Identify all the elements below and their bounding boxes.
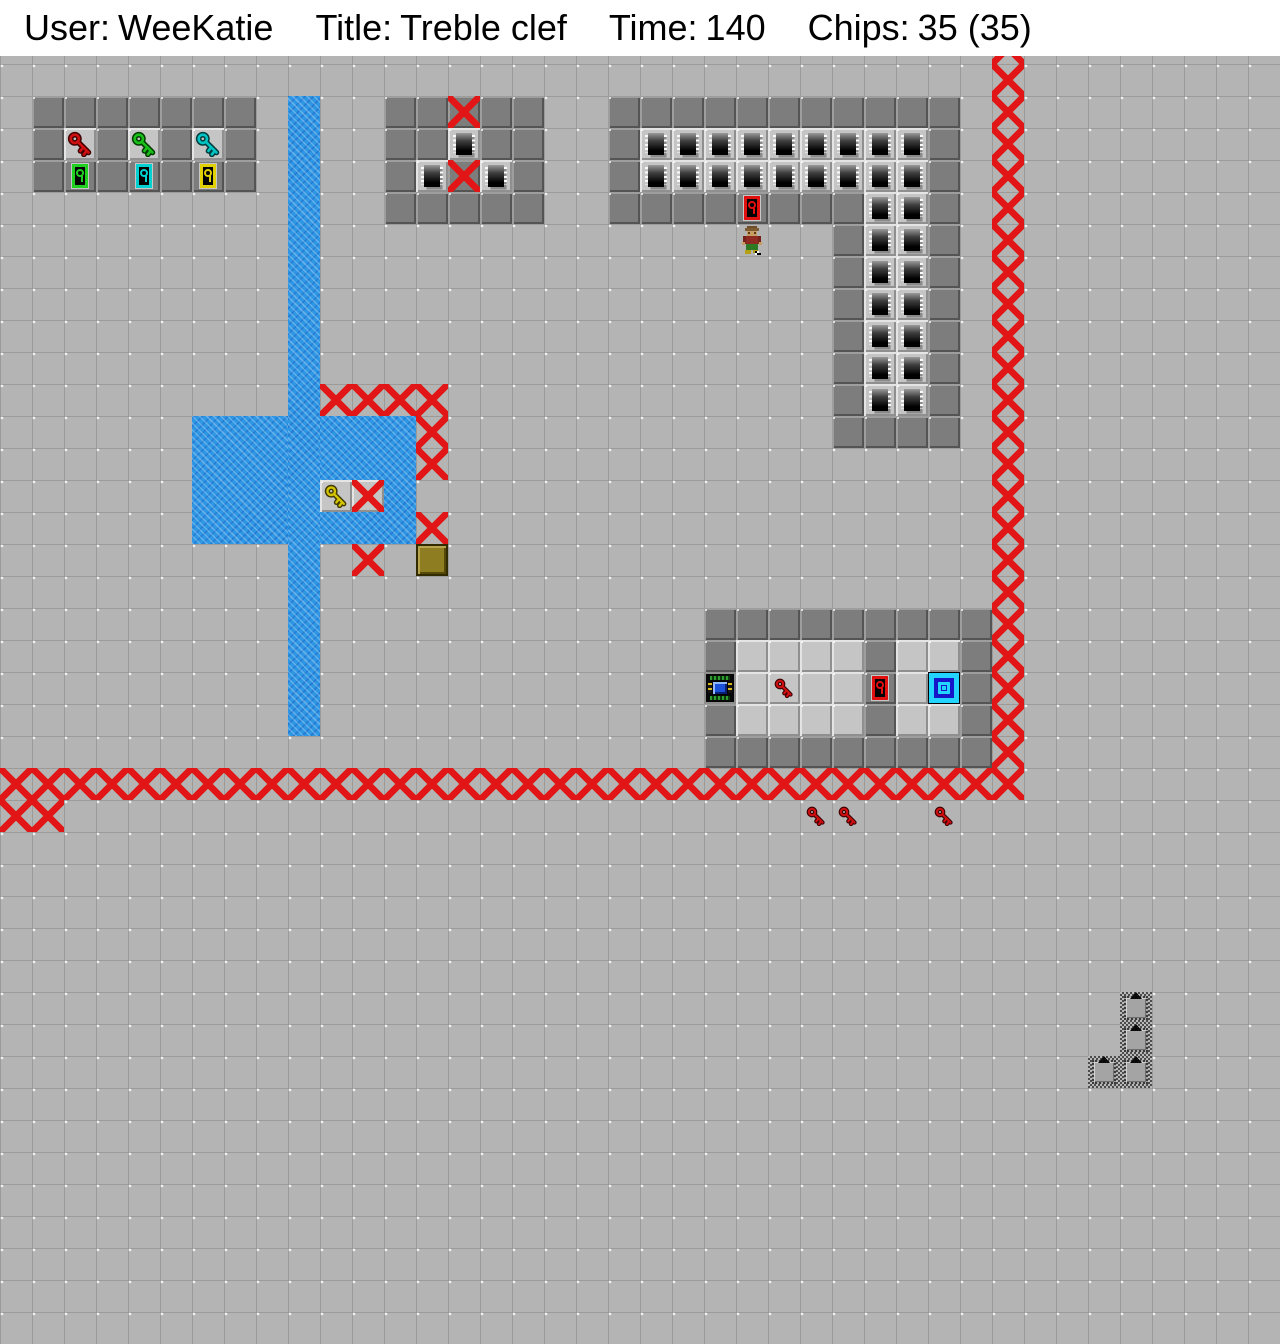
wall-tile — [832, 608, 864, 640]
cyan-door-icon — [136, 164, 152, 188]
wall-tile — [832, 736, 864, 768]
hidden-wall-arrow-icon — [1098, 1056, 1110, 1063]
red-key — [832, 800, 864, 832]
x-marker — [864, 768, 896, 800]
chip-tile — [896, 352, 928, 384]
user-label: User: — [24, 7, 110, 48]
chip-icon — [904, 389, 920, 411]
x-marker — [416, 448, 448, 480]
x-marker — [896, 768, 928, 800]
wall-tile — [832, 224, 864, 256]
red-key — [800, 800, 832, 832]
floor-tile — [768, 640, 800, 672]
x-marker — [992, 64, 1024, 96]
chip-tile — [736, 160, 768, 192]
floor-tile — [736, 640, 768, 672]
water — [288, 96, 320, 736]
red-door-icon — [744, 196, 760, 220]
wall-tile — [480, 128, 512, 160]
chip-tile — [736, 128, 768, 160]
red-key — [64, 128, 96, 160]
hidden-wall — [1120, 992, 1152, 1024]
wall-x-marker — [448, 160, 480, 192]
chip-icon — [904, 165, 920, 187]
wall-tile — [960, 736, 992, 768]
x-marker — [0, 800, 32, 832]
x-marker — [416, 768, 448, 800]
chip-tile — [640, 128, 672, 160]
chip-tile — [896, 320, 928, 352]
wall-tile — [192, 96, 224, 128]
x-marker — [416, 512, 448, 544]
x-marker — [512, 768, 544, 800]
wall-tile — [512, 160, 544, 192]
title-field: Title:Treble clef — [315, 7, 566, 49]
wall-tile — [768, 192, 800, 224]
wall-tile — [800, 608, 832, 640]
hidden-wall-pane-icon — [1124, 1028, 1148, 1052]
wall-tile — [736, 96, 768, 128]
chip-icon — [840, 133, 856, 155]
socket-core-icon — [712, 681, 728, 695]
wall-tile — [960, 672, 992, 704]
chip-tile — [800, 128, 832, 160]
red-lock — [864, 672, 896, 704]
wall-tile — [608, 192, 640, 224]
chip-tile — [832, 160, 864, 192]
x-marker — [992, 352, 1024, 384]
x-marker — [800, 768, 832, 800]
wall-tile — [512, 192, 544, 224]
teleport — [928, 672, 960, 704]
chip-icon — [488, 165, 504, 187]
wall-tile — [32, 128, 64, 160]
x-marker — [352, 768, 384, 800]
green-door-icon — [72, 164, 88, 188]
x-marker — [992, 128, 1024, 160]
wall-tile — [384, 96, 416, 128]
x-marker — [160, 768, 192, 800]
red-key-icon — [838, 806, 858, 826]
wall-tile — [224, 96, 256, 128]
x-marker — [256, 768, 288, 800]
wall-tile — [640, 96, 672, 128]
wall-tile — [96, 128, 128, 160]
chip-tile — [864, 288, 896, 320]
wall-tile — [768, 96, 800, 128]
chip-tile — [448, 128, 480, 160]
wall-tile — [928, 320, 960, 352]
floor-tile — [768, 704, 800, 736]
x-marker — [992, 56, 1024, 64]
wall-tile — [512, 128, 544, 160]
wall-tile — [928, 352, 960, 384]
wall-tile — [416, 192, 448, 224]
yellow-door-icon — [200, 164, 216, 188]
wall-tile — [608, 160, 640, 192]
time-field: Time:140 — [609, 7, 766, 49]
chip-icon — [904, 357, 920, 379]
chip-icon — [872, 293, 888, 315]
user-value: WeeKatie — [118, 7, 273, 48]
red-key-icon — [67, 131, 93, 157]
wall-tile — [928, 96, 960, 128]
wall-tile — [832, 352, 864, 384]
x-marker — [928, 768, 960, 800]
wall-tile — [384, 160, 416, 192]
chip-icon — [872, 197, 888, 219]
wall-tile — [864, 416, 896, 448]
floor-tile — [896, 704, 928, 736]
chip-tile — [864, 256, 896, 288]
x-marker — [832, 768, 864, 800]
x-marker — [416, 416, 448, 448]
wall-tile — [160, 128, 192, 160]
x-marker — [960, 768, 992, 800]
wall-tile — [512, 96, 544, 128]
green-lock — [64, 160, 96, 192]
wall-tile — [832, 416, 864, 448]
chip-tile — [704, 128, 736, 160]
wall-tile — [160, 96, 192, 128]
wall-tile — [864, 640, 896, 672]
x-marker — [640, 768, 672, 800]
chip-icon — [648, 133, 664, 155]
x-marker — [32, 768, 64, 800]
chip-icon — [712, 165, 728, 187]
wall-tile — [704, 640, 736, 672]
x-marker — [992, 544, 1024, 576]
wall-tile — [384, 192, 416, 224]
chip-icon — [456, 133, 472, 155]
x-marker — [96, 768, 128, 800]
wall-tile — [832, 320, 864, 352]
level-map — [0, 56, 1280, 1344]
wall-tile — [832, 288, 864, 320]
x-marker — [992, 288, 1024, 320]
x-marker — [992, 704, 1024, 736]
x-marker — [352, 544, 384, 576]
yellow-key — [320, 480, 352, 512]
cyan-key — [192, 128, 224, 160]
wall-tile — [864, 96, 896, 128]
chip-icon — [712, 133, 728, 155]
x-marker — [448, 768, 480, 800]
red-key-icon — [934, 806, 954, 826]
chip-tile — [480, 160, 512, 192]
chip-tile — [864, 384, 896, 416]
floor-tile — [736, 672, 768, 704]
chip-tile — [896, 160, 928, 192]
x-marker — [992, 192, 1024, 224]
socket-pins-icon — [710, 676, 730, 680]
player — [736, 224, 768, 256]
status-bar: User:WeeKatie Title:Treble clef Time:140… — [0, 0, 1280, 56]
yellow-lock — [192, 160, 224, 192]
water — [192, 416, 288, 544]
wall-tile — [928, 288, 960, 320]
hidden-wall-pane-icon — [1124, 996, 1148, 1020]
wall-tile — [608, 96, 640, 128]
x-marker — [768, 768, 800, 800]
wall-tile — [928, 384, 960, 416]
wall-tile — [672, 192, 704, 224]
chip-icon — [872, 165, 888, 187]
floor-tile — [800, 672, 832, 704]
x-marker — [992, 96, 1024, 128]
chip-tile — [896, 288, 928, 320]
floor-tile — [928, 704, 960, 736]
chip-tile — [864, 352, 896, 384]
x-marker — [384, 768, 416, 800]
x-marker — [192, 768, 224, 800]
user-field: User:WeeKatie — [24, 7, 273, 49]
wall-tile — [832, 256, 864, 288]
hidden-wall — [1088, 1056, 1120, 1088]
x-marker — [992, 576, 1024, 608]
wall-tile — [128, 96, 160, 128]
chip-icon — [872, 229, 888, 251]
wall-tile — [704, 704, 736, 736]
green-key-icon — [131, 131, 157, 157]
time-label: Time: — [609, 7, 698, 48]
x-marker — [128, 768, 160, 800]
floor-tile — [896, 672, 928, 704]
red-key-icon — [774, 678, 794, 698]
chip-tile — [704, 160, 736, 192]
hidden-wall-arrow-icon — [1130, 1056, 1142, 1063]
chip-tile — [896, 192, 928, 224]
wall-tile — [224, 160, 256, 192]
red-key-icon — [806, 806, 826, 826]
wall-tile — [96, 160, 128, 192]
wall-tile — [896, 96, 928, 128]
wall-tile — [736, 608, 768, 640]
wall-tile — [832, 384, 864, 416]
chip-icon — [680, 133, 696, 155]
wall-tile — [672, 96, 704, 128]
chip-tile — [416, 160, 448, 192]
x-marker — [352, 384, 384, 416]
floor-tile — [736, 704, 768, 736]
green-key — [128, 128, 160, 160]
yellow-key-icon — [324, 484, 348, 508]
chip-icon — [872, 389, 888, 411]
floor-tile — [896, 640, 928, 672]
chip-tile — [640, 160, 672, 192]
chip-tile — [896, 384, 928, 416]
wall-tile — [480, 96, 512, 128]
wall-tile — [704, 192, 736, 224]
hidden-wall — [1120, 1024, 1152, 1056]
x-marker — [544, 768, 576, 800]
chip-icon — [424, 165, 440, 187]
wall-tile — [800, 192, 832, 224]
x-marker — [992, 416, 1024, 448]
wall-tile — [608, 128, 640, 160]
chip-tile — [896, 224, 928, 256]
wall-tile — [480, 192, 512, 224]
wall-tile — [32, 96, 64, 128]
x-marker — [992, 768, 1024, 800]
wall-tile — [864, 704, 896, 736]
socket — [704, 672, 736, 704]
wall-tile — [736, 736, 768, 768]
chip-tile — [896, 256, 928, 288]
chip-icon — [872, 325, 888, 347]
chip-icon — [776, 133, 792, 155]
dirt-block — [416, 544, 448, 576]
wall-tile — [928, 736, 960, 768]
wall-tile — [800, 736, 832, 768]
socket-pins-icon — [710, 696, 730, 700]
wall-tile — [416, 96, 448, 128]
chip-tile — [864, 128, 896, 160]
chip-tile — [832, 128, 864, 160]
wall-tile — [96, 96, 128, 128]
chip-tile — [800, 160, 832, 192]
x-marker — [992, 320, 1024, 352]
chip-tile — [672, 160, 704, 192]
chip-icon — [904, 229, 920, 251]
x-marker — [32, 800, 64, 832]
wall-tile — [768, 608, 800, 640]
chip-icon — [904, 133, 920, 155]
x-marker — [320, 384, 352, 416]
hidden-wall-pane-icon — [1124, 1060, 1148, 1084]
x-marker — [992, 224, 1024, 256]
title-label: Title: — [315, 7, 392, 48]
wall-tile — [960, 640, 992, 672]
wall-tile — [896, 608, 928, 640]
x-marker — [224, 768, 256, 800]
wall-tile — [384, 128, 416, 160]
red-lock — [736, 192, 768, 224]
chip-tile — [864, 320, 896, 352]
wall-tile — [640, 192, 672, 224]
wall-tile — [864, 736, 896, 768]
wall-tile — [928, 608, 960, 640]
x-marker — [288, 768, 320, 800]
x-marker — [416, 384, 448, 416]
chip-tile — [896, 128, 928, 160]
floor-tile — [800, 704, 832, 736]
chip-icon — [648, 165, 664, 187]
time-value: 140 — [706, 7, 766, 48]
chip-icon — [840, 165, 856, 187]
title-value: Treble clef — [400, 7, 567, 48]
x-marker — [576, 768, 608, 800]
floor-tile — [928, 640, 960, 672]
chip-icon — [744, 133, 760, 155]
chip-icon — [744, 165, 760, 187]
red-key — [928, 800, 960, 832]
chip-icon — [872, 357, 888, 379]
chip-tile — [672, 128, 704, 160]
socket-pins-icon — [728, 683, 732, 693]
floor-tile — [832, 640, 864, 672]
wall-tile — [704, 608, 736, 640]
wall-tile — [928, 128, 960, 160]
x-marker — [384, 384, 416, 416]
chip-tile — [864, 224, 896, 256]
wall-tile — [928, 416, 960, 448]
cyan-key-icon — [195, 131, 221, 157]
chip-icon — [680, 165, 696, 187]
x-marker — [992, 256, 1024, 288]
hidden-wall — [1120, 1056, 1152, 1088]
chip-tile — [864, 160, 896, 192]
chip-icon — [904, 293, 920, 315]
x-marker — [608, 768, 640, 800]
hidden-wall-pane-icon — [1092, 1060, 1116, 1084]
chip-tile — [864, 192, 896, 224]
x-marker — [992, 160, 1024, 192]
wall-tile — [224, 128, 256, 160]
wall-tile — [704, 96, 736, 128]
wall-tile — [896, 416, 928, 448]
wall-x-marker — [448, 96, 480, 128]
wall-tile — [448, 192, 480, 224]
chip-tile — [768, 160, 800, 192]
chip-icon — [808, 165, 824, 187]
wall-tile — [960, 704, 992, 736]
player-sprite-icon — [736, 224, 768, 256]
wall-tile — [160, 160, 192, 192]
hidden-wall-arrow-icon — [1130, 1024, 1142, 1031]
red-door-icon — [872, 676, 888, 700]
x-marker — [992, 672, 1024, 704]
chip-icon — [904, 197, 920, 219]
x-marker — [992, 736, 1024, 768]
red-key — [768, 672, 800, 704]
chip-icon — [904, 325, 920, 347]
wall-tile — [864, 608, 896, 640]
wall-tile — [832, 96, 864, 128]
x-marker — [320, 768, 352, 800]
wall-tile — [928, 160, 960, 192]
x-marker — [736, 768, 768, 800]
wall-tile — [928, 192, 960, 224]
x-marker — [992, 608, 1024, 640]
floor-x-marker — [352, 480, 384, 512]
x-marker — [704, 768, 736, 800]
floor-tile — [832, 672, 864, 704]
chips-field: Chips:35 (35) — [808, 7, 1032, 49]
chip-icon — [872, 133, 888, 155]
x-marker — [992, 384, 1024, 416]
wall-tile — [32, 160, 64, 192]
x-marker — [992, 640, 1024, 672]
chip-icon — [872, 261, 888, 283]
chip-tile — [768, 128, 800, 160]
cyan-lock — [128, 160, 160, 192]
floor-tile — [832, 704, 864, 736]
wall-tile — [768, 736, 800, 768]
chip-icon — [808, 133, 824, 155]
wall-tile — [832, 192, 864, 224]
x-marker — [0, 768, 32, 800]
wall-tile — [64, 96, 96, 128]
chip-icon — [904, 261, 920, 283]
x-marker — [992, 480, 1024, 512]
hidden-wall-arrow-icon — [1130, 992, 1142, 999]
floor-tile — [800, 640, 832, 672]
wall-tile — [800, 96, 832, 128]
x-marker — [480, 768, 512, 800]
x-marker — [992, 512, 1024, 544]
chips-value: 35 (35) — [918, 7, 1032, 48]
